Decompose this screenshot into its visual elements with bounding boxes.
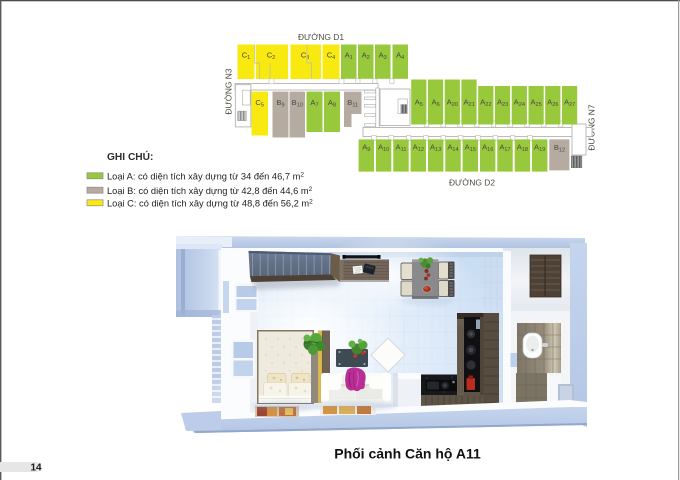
svg-text:Loại B: có diện tích xây dựng: Loại B: có diện tích xây dựng từ 42,8 đế… [107,186,313,196]
svg-text:ĐƯỜNG D2: ĐƯỜNG D2 [449,178,495,188]
svg-text:ĐƯỜNG N3: ĐƯỜNG N3 [224,68,234,114]
svg-text:Loại A: có diện tích xây dựng: Loại A: có diện tích xây dựng từ 34 đến … [107,172,304,182]
svg-text:14: 14 [31,463,43,474]
svg-text:ĐƯỜNG D1: ĐƯỜNG D1 [298,32,344,42]
svg-text:GHI CHÚ:: GHI CHÚ: [107,150,153,163]
svg-text:Loại C: có diện tích xây dựng: Loại C: có diện tích xây dựng từ 48,8 đế… [107,198,313,208]
svg-text:Phối cảnh Căn hộ A11: Phối cảnh Căn hộ A11 [334,446,481,462]
